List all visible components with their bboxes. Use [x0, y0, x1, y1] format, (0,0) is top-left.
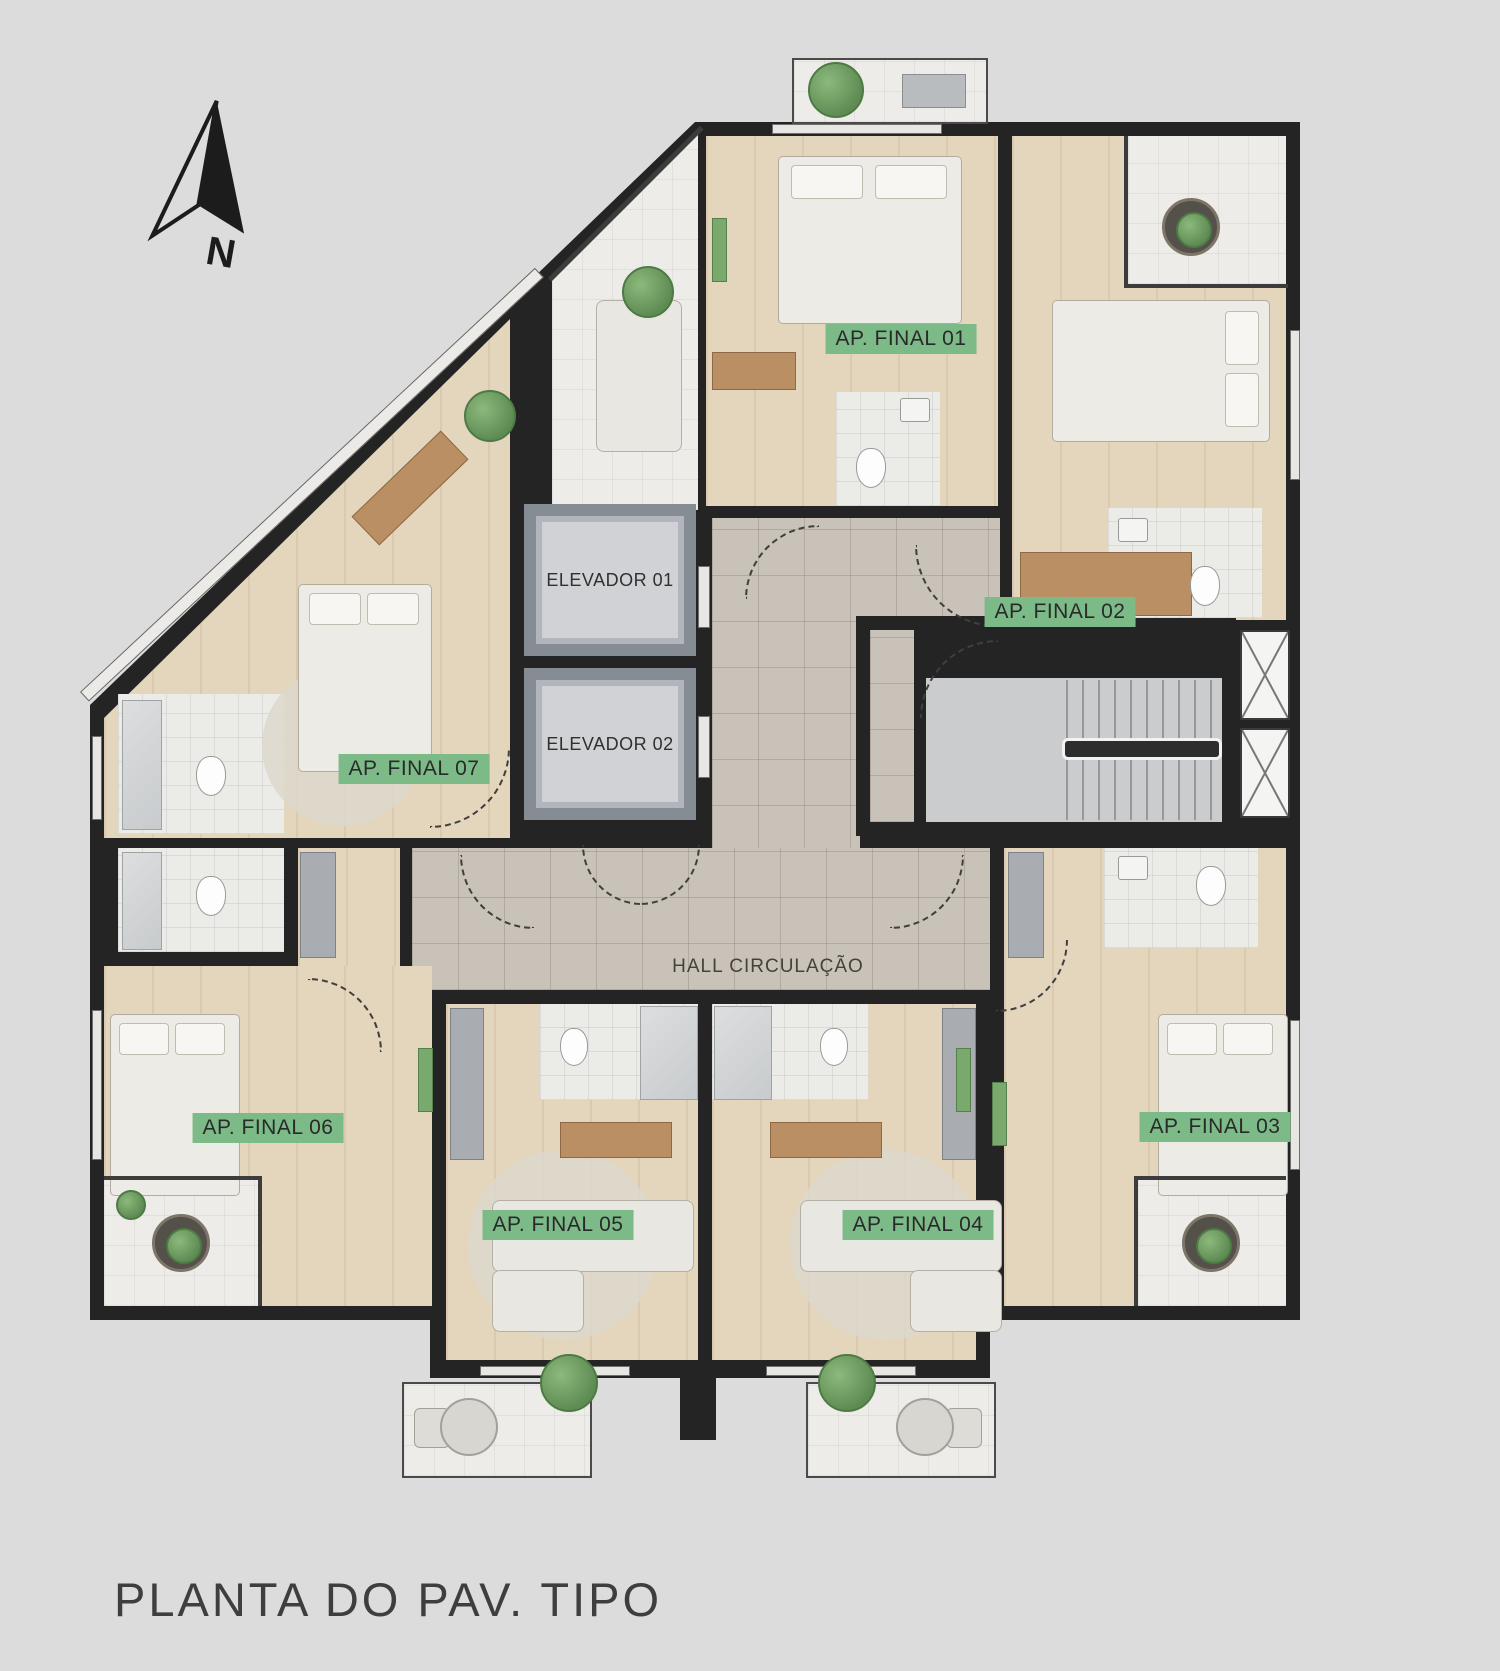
- plant: [116, 1190, 146, 1220]
- wall-planter: [712, 218, 727, 282]
- floor-plan: N ELEVADOR 01 ELEVADOR 02: [0, 0, 1500, 1671]
- center-pier: [680, 1378, 716, 1440]
- kitchen-counter: [300, 852, 336, 958]
- elevator-02-label: ELEVADOR 02: [546, 734, 673, 755]
- label-ap-final-01: AP. FINAL 01: [826, 324, 977, 354]
- label-ap-final-07: AP. FINAL 07: [339, 754, 490, 784]
- elevator-02-cab: ELEVADOR 02: [536, 680, 684, 808]
- wall-planter: [418, 1048, 433, 1112]
- elevator-02-door: [698, 716, 710, 778]
- toilet: [560, 1028, 588, 1066]
- balcony-ap02-wall: [1124, 284, 1288, 288]
- balcony-ap03-wall: [1134, 1176, 1138, 1306]
- label-ap-final-03: AP. FINAL 03: [1140, 1112, 1291, 1142]
- toilet: [1190, 566, 1220, 606]
- plant: [464, 390, 516, 442]
- bed: [778, 156, 962, 324]
- kitchen-counter: [450, 1008, 484, 1160]
- sink: [1118, 856, 1148, 880]
- sofa: [492, 1270, 584, 1332]
- plant: [818, 1354, 876, 1412]
- terrace-sofa: [596, 300, 682, 452]
- sink: [900, 398, 930, 422]
- north-label: N: [203, 229, 239, 277]
- stair-handrail: [1062, 738, 1222, 760]
- label-hall-circulacao: HALL CIRCULAÇÃO: [672, 956, 864, 978]
- toilet: [1196, 866, 1226, 906]
- shower: [714, 1006, 772, 1100]
- window: [1290, 330, 1300, 480]
- balcony-ap03-wall: [1134, 1176, 1286, 1180]
- balcony-mat: [902, 74, 966, 108]
- balcony-table: [896, 1398, 954, 1456]
- bed: [1158, 1014, 1288, 1196]
- plant: [1196, 1228, 1232, 1264]
- shower: [122, 852, 162, 950]
- toilet: [856, 448, 886, 488]
- plant: [166, 1228, 202, 1264]
- shower: [122, 700, 162, 830]
- plant: [540, 1354, 598, 1412]
- window: [92, 736, 102, 820]
- sink: [1118, 518, 1148, 542]
- duct-shaft: [1240, 728, 1290, 818]
- label-ap-final-04: AP. FINAL 04: [843, 1210, 994, 1240]
- window: [1290, 1020, 1300, 1170]
- toilet: [820, 1028, 848, 1066]
- window: [772, 124, 942, 134]
- label-ap-final-02: AP. FINAL 02: [985, 597, 1136, 627]
- sofa: [910, 1270, 1002, 1332]
- toilet: [196, 756, 226, 796]
- page-title: PLANTA DO PAV. TIPO: [114, 1572, 662, 1627]
- plant: [1176, 212, 1212, 248]
- balcony-ap02-wall: [1124, 136, 1128, 288]
- plant: [622, 266, 674, 318]
- balcony-ap06-wall: [104, 1176, 262, 1180]
- window: [92, 1010, 102, 1160]
- balcony-table: [440, 1398, 498, 1456]
- label-ap-final-06: AP. FINAL 06: [193, 1113, 344, 1143]
- elevator-01-door: [698, 566, 710, 628]
- balcony-ap06-wall: [258, 1176, 262, 1306]
- bed: [1052, 300, 1270, 442]
- elevator-01-cab: ELEVADOR 01: [536, 516, 684, 644]
- tv-cabinet: [560, 1122, 672, 1158]
- bed: [110, 1014, 240, 1196]
- wall-planter: [956, 1048, 971, 1112]
- duct-shaft: [1240, 630, 1290, 720]
- plant: [808, 62, 864, 118]
- bed: [298, 584, 432, 772]
- wall-planter: [992, 1082, 1007, 1146]
- north-arrow-icon: N: [125, 84, 294, 286]
- toilet: [196, 876, 226, 916]
- label-ap-final-05: AP. FINAL 05: [483, 1210, 634, 1240]
- tv-cabinet: [770, 1122, 882, 1158]
- elevator-01-label: ELEVADOR 01: [546, 570, 673, 591]
- floor-stair-vestibule: [870, 630, 914, 822]
- shower: [640, 1006, 698, 1100]
- desk: [712, 352, 796, 390]
